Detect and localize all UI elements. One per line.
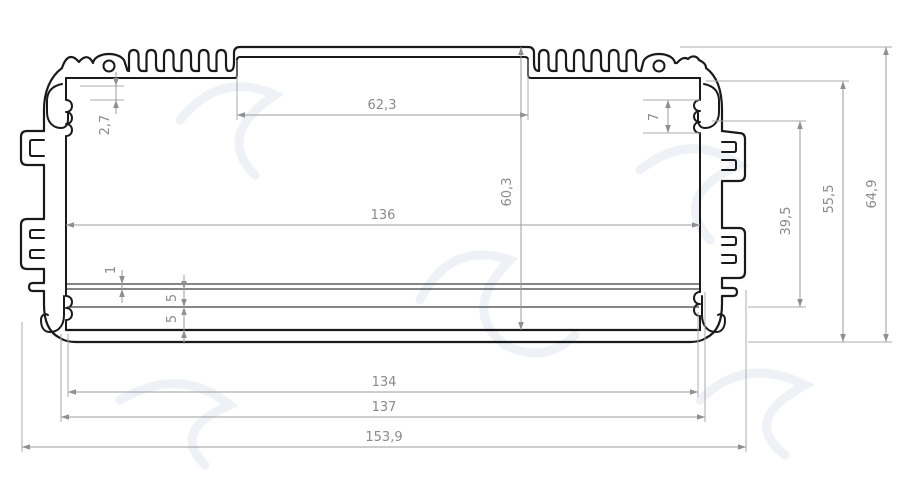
dimension-arrow [22,444,30,450]
right-fin-slot [722,237,736,245]
dimension-arrow [181,281,187,289]
profile-outline [21,47,745,342]
watermark-stroke [420,255,575,353]
dimension-arrow [119,276,125,284]
left-screw-hole [104,61,115,72]
watermark-stroke [640,149,740,240]
dimension-arrow [113,78,119,86]
dimension-label: 2,7 [98,115,113,136]
dimension-arrow [840,81,846,89]
dimension-label: 137 [372,400,397,415]
dimension-label: 39,5 [779,207,794,236]
dimension-label: 134 [372,375,397,390]
dimension-label: 153,9 [365,430,402,445]
dimension-arrow [113,100,119,108]
inner-ceiling [66,57,700,78]
dimension-label: 1 [104,266,119,274]
dimension-arrow [119,289,125,297]
dimension-arrow [181,299,187,307]
dimension-arrow [181,330,187,338]
dimension-label: 60,3 [500,178,515,207]
dimension-arrow [883,334,889,342]
dimension-arrow [665,125,671,133]
dimension-label: 62,3 [368,98,397,113]
right-screw-hole [654,61,665,72]
drawing-canvas: 62,3136134137153,92,7760,339,555,564,915… [0,0,900,500]
watermark [120,87,805,465]
corner-screw-boss-top-left [47,84,68,128]
dimension-arrow [66,222,74,228]
watermark-stroke [120,384,230,465]
dimension-arrow [738,444,746,450]
dimension-label: 55,5 [822,185,837,214]
right-fin-slot [722,142,736,152]
dimension-arrow [68,389,76,395]
dimension-arrow [690,389,698,395]
dimension-label: 7 [647,113,662,121]
dimension-arrow [61,414,69,420]
dimension-label: 64,9 [865,180,880,209]
right-fin-slot [722,255,736,263]
extension-lines [22,47,892,452]
technical-drawing: 62,3136134137153,92,7760,339,555,564,915… [0,0,900,500]
left-fin-slot [30,230,44,238]
dimension-arrow [518,47,524,55]
dimension-arrow [797,299,803,307]
dimension-label: 5 [165,315,180,323]
watermark-stroke [700,373,805,455]
dimension-arrow [797,121,803,129]
dimension-label: 5 [165,294,180,302]
dimension-arrow [237,112,245,118]
dimension-arrow [883,47,889,55]
dimension-arrow [697,414,705,420]
dimension-label: 136 [371,208,396,223]
dimension-arrow [518,322,524,330]
watermark-stroke [180,87,275,175]
dimension-arrow [665,100,671,108]
left-fin-slot [30,250,44,258]
left-fin-slot [30,140,44,156]
dimension-arrow [840,334,846,342]
top-outer-edge [44,47,722,131]
